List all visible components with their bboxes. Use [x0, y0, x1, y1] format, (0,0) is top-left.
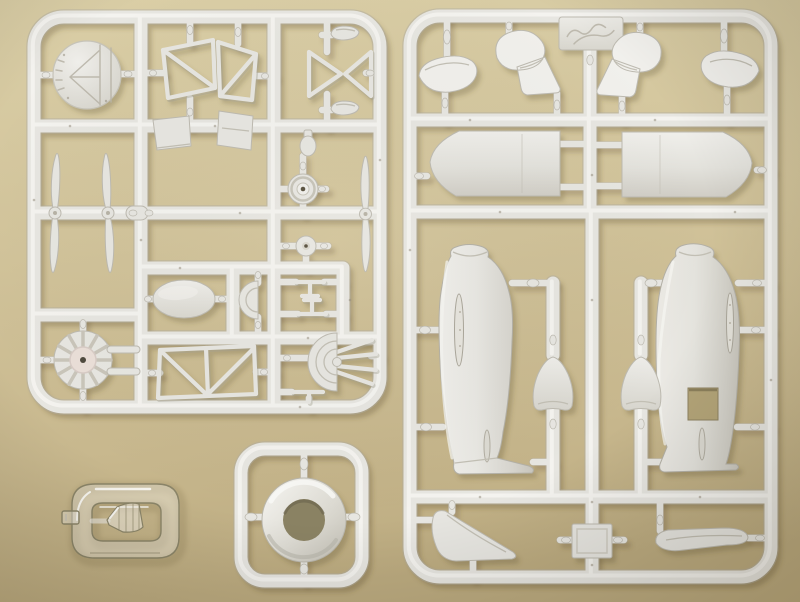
hatch-part: [572, 524, 612, 558]
fuselage-half-right: [656, 244, 740, 472]
clear-tab-part: [62, 511, 79, 524]
nacelle-half-right: [622, 132, 752, 197]
bottle-fitting-part: [300, 136, 316, 156]
nacelle-half-left: [430, 131, 560, 196]
spinner-pod-part-2: [331, 101, 359, 115]
kit-photo: [0, 0, 800, 602]
fuel-tank-part: [153, 280, 215, 318]
engine-strut-part-1: [107, 346, 140, 353]
hub-part: [296, 236, 316, 256]
kit-photo-svg: [0, 0, 800, 602]
engine-strut-part-2: [107, 368, 140, 375]
cockpit-cutout: [688, 388, 718, 420]
radial-engine-part: [54, 331, 112, 389]
clear-sprue: [62, 484, 182, 562]
wheel-part: [288, 174, 318, 204]
engine-cowling-part: [262, 478, 346, 562]
spinner-pod-part-1: [331, 26, 359, 40]
